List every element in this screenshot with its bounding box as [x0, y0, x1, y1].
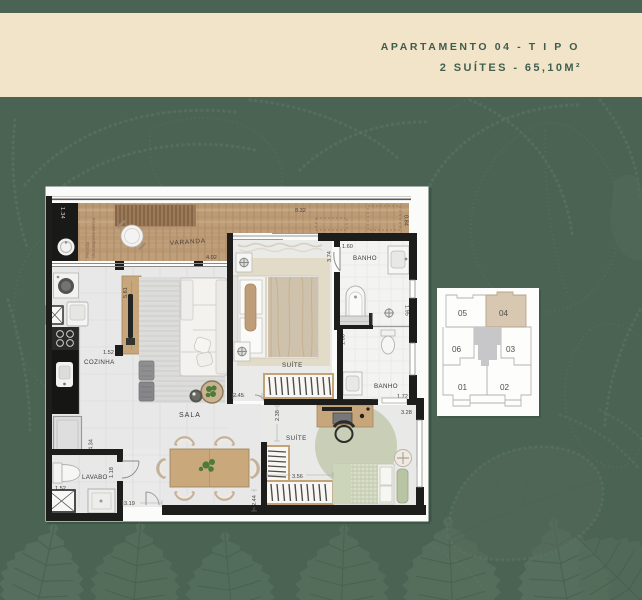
svg-text:02: 02	[500, 383, 510, 392]
svg-text:03: 03	[506, 345, 516, 354]
svg-text:04: 04	[499, 309, 509, 318]
svg-text:01: 01	[458, 383, 468, 392]
svg-text:06: 06	[452, 345, 462, 354]
svg-text:05: 05	[458, 309, 468, 318]
